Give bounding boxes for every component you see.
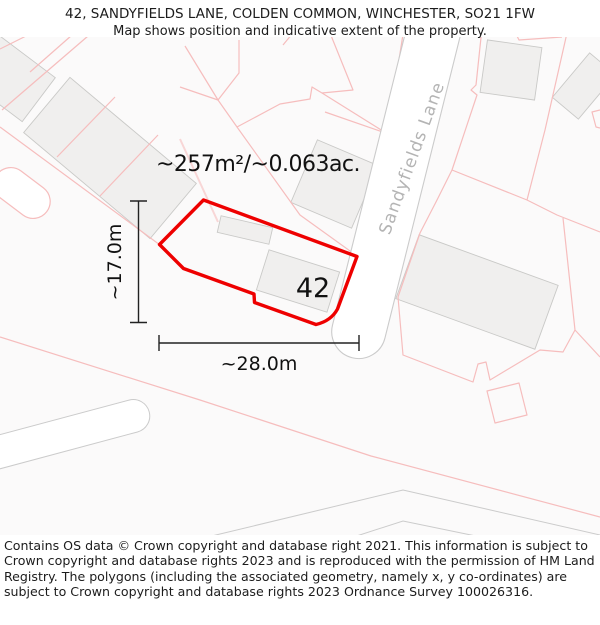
width-dimension-label: ~28.0m (221, 353, 298, 375)
copyright-notice: Contains OS data © Crown copyright and d… (4, 538, 596, 600)
map-description: Map shows position and indicative extent… (0, 22, 600, 39)
property-address-title: 42, SANDYFIELDS LANE, COLDEN COMMON, WIN… (0, 0, 600, 22)
building (480, 40, 542, 100)
height-dimension-label: ~17.0m (104, 224, 126, 301)
area-label: ~257m²/~0.063ac. (156, 152, 360, 177)
map-footer: Contains OS data © Crown copyright and d… (0, 535, 600, 625)
map-canvas: Sandyfields Lane ~257m²/~0.063ac. 42 ~17… (0, 0, 600, 625)
plot-number-label: 42 (296, 273, 330, 304)
map-header: 42, SANDYFIELDS LANE, COLDEN COMMON, WIN… (0, 0, 600, 37)
